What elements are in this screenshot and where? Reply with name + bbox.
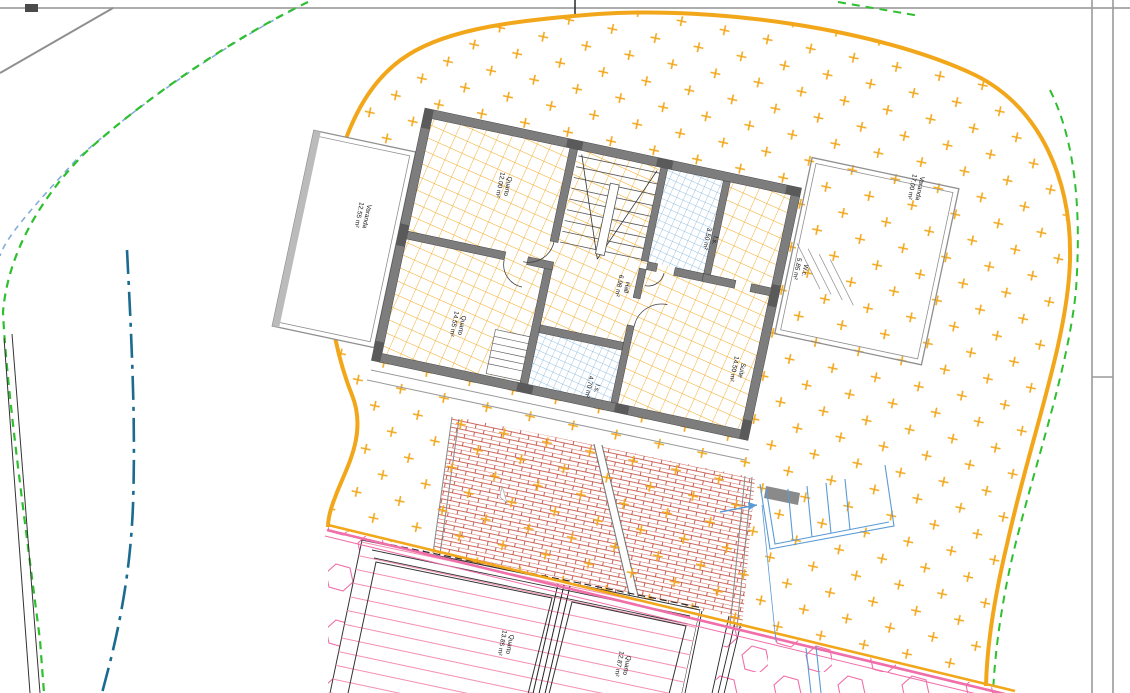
stream-line [102,250,134,693]
floor-plan-canvas: Varanda 12.55 m² Quarto 12.00 m² Quarto … [0,0,1130,693]
road-edge-line [0,8,113,73]
sheet-marker [25,4,38,12]
contour-green-dashed-left [3,2,308,693]
parcel-edge-lines [4,334,40,693]
